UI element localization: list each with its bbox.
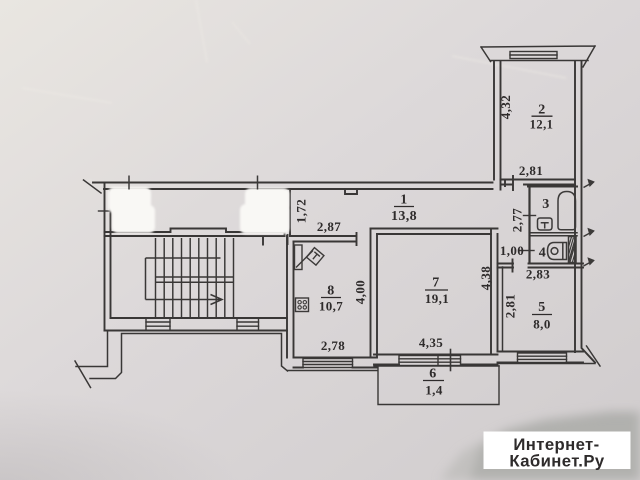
svg-text:2,81: 2,81 [519, 163, 543, 178]
svg-text:7: 7 [432, 276, 439, 291]
svg-text:2,83: 2,83 [526, 267, 550, 282]
svg-text:1,00: 1,00 [500, 243, 524, 258]
svg-text:2,87: 2,87 [317, 219, 341, 234]
svg-text:12,1: 12,1 [530, 118, 554, 132]
svg-text:4,38: 4,38 [478, 266, 493, 290]
svg-text:2,77: 2,77 [510, 208, 525, 232]
svg-text:4,35: 4,35 [419, 335, 443, 350]
svg-text:1: 1 [400, 193, 407, 208]
svg-text:8,0: 8,0 [533, 317, 550, 332]
svg-text:6: 6 [429, 367, 436, 382]
svg-text:4,00: 4,00 [353, 280, 368, 304]
svg-text:2,78: 2,78 [321, 338, 345, 353]
svg-text:3: 3 [542, 197, 549, 212]
svg-text:8: 8 [327, 284, 334, 299]
svg-text:10,7: 10,7 [319, 299, 343, 314]
svg-text:Кабинет.Ру: Кабинет.Ру [509, 452, 604, 471]
svg-text:4: 4 [539, 246, 546, 261]
svg-text:2: 2 [538, 102, 545, 117]
svg-text:2,81: 2,81 [503, 294, 518, 318]
svg-text:4,32: 4,32 [498, 95, 513, 119]
svg-text:19,1: 19,1 [425, 291, 449, 306]
svg-text:1,72: 1,72 [294, 199, 309, 223]
svg-text:1,4: 1,4 [425, 383, 443, 398]
svg-text:13,8: 13,8 [391, 209, 417, 224]
svg-text:5: 5 [538, 300, 545, 315]
